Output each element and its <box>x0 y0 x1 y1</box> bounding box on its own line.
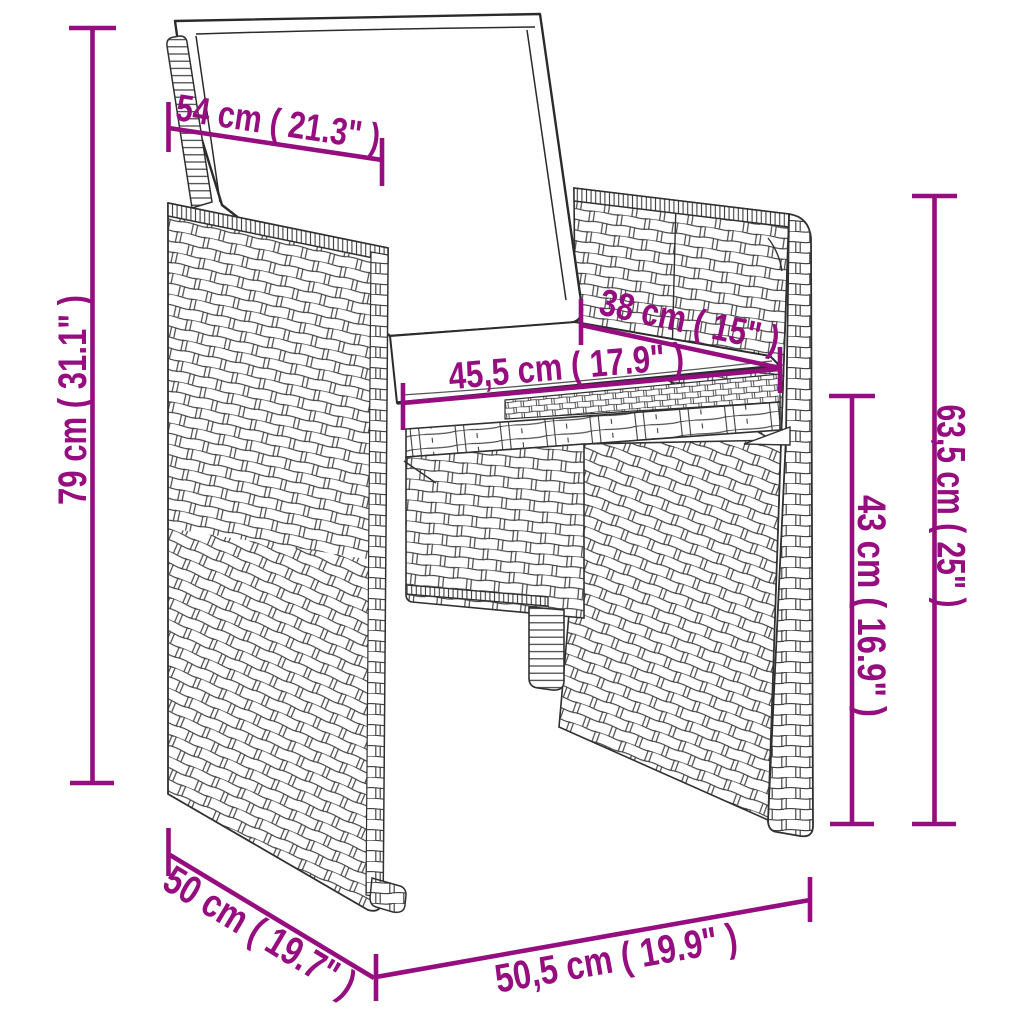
svg-text:43 cm ( 16.9" ): 43 cm ( 16.9" ) <box>849 495 893 717</box>
svg-text:79 cm ( 31.1" ): 79 cm ( 31.1" ) <box>51 295 95 505</box>
svg-text:63,5 cm ( 25" ): 63,5 cm ( 25" ) <box>929 405 973 608</box>
